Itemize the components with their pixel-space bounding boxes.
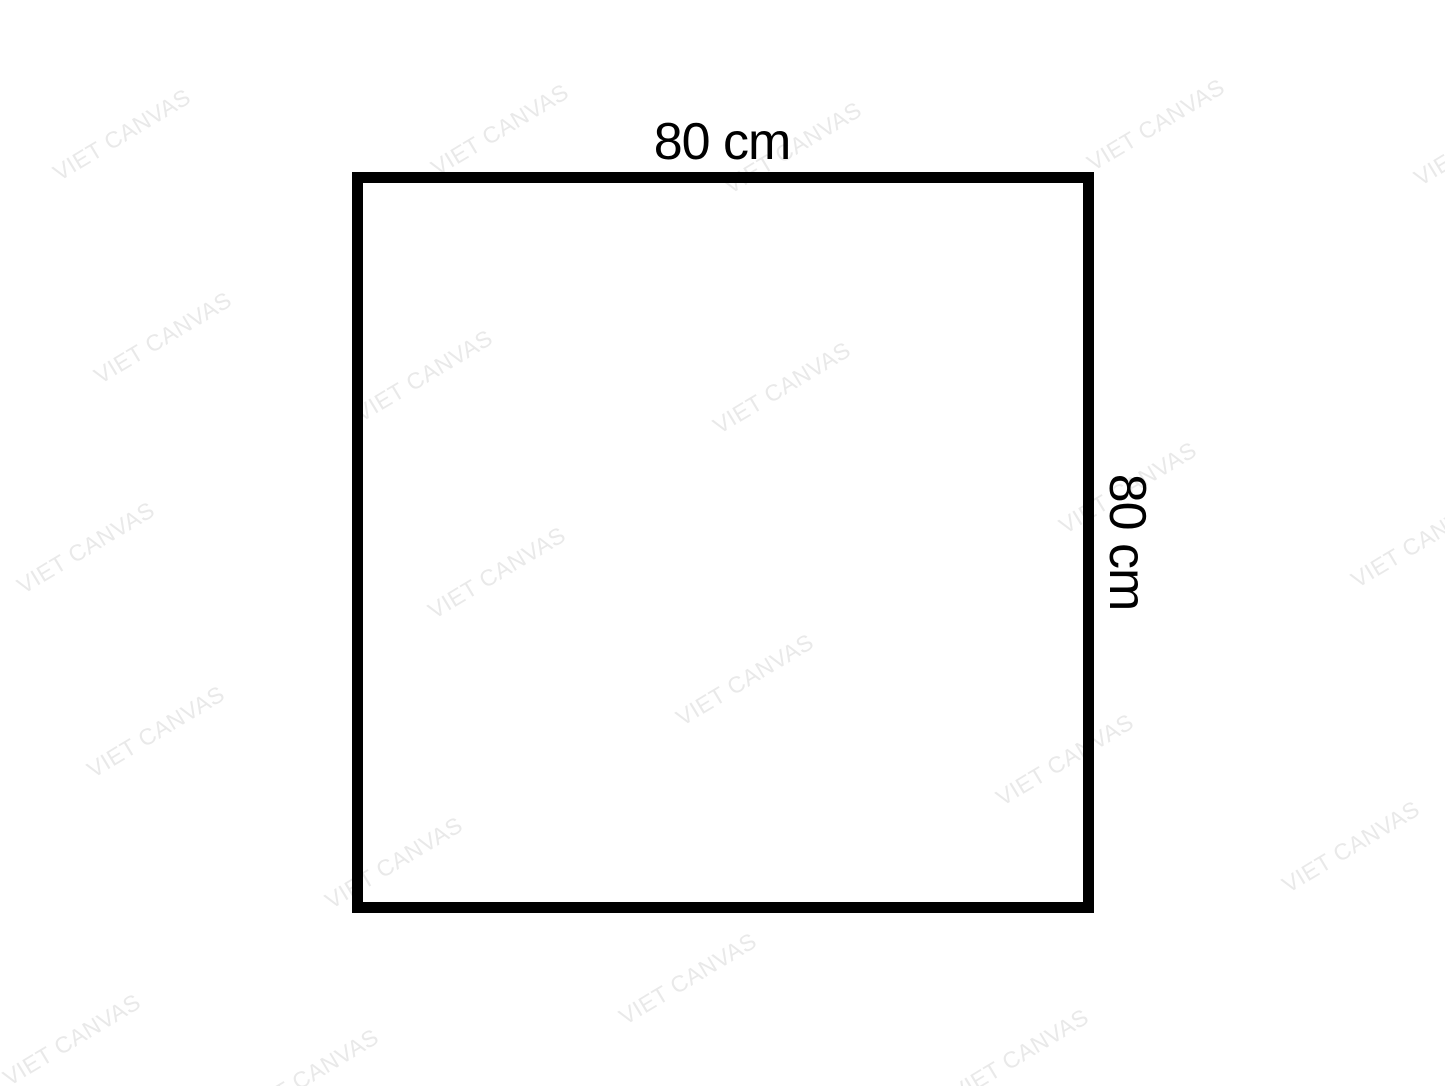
height-dimension-label: 80 cm: [1101, 474, 1153, 611]
watermark-text: VIET CANVAS: [89, 286, 236, 389]
watermark-text: VIET CANVAS: [1346, 490, 1445, 593]
watermark-text: VIET CANVAS: [946, 1003, 1093, 1086]
watermark-text: VIET CANVAS: [236, 1023, 383, 1086]
watermark-text: VIET CANVAS: [82, 680, 229, 783]
watermark-text: VIET CANVAS: [1082, 73, 1229, 176]
watermark-text: VIET CANVAS: [1409, 88, 1445, 191]
dimension-diagram: VIET CANVASVIET CANVASVIET CANVASVIET CA…: [0, 0, 1445, 1086]
square-outline: [352, 172, 1094, 913]
watermark-text: VIET CANVAS: [426, 78, 573, 181]
watermark-text: VIET CANVAS: [12, 496, 159, 599]
watermark-text: VIET CANVAS: [0, 988, 146, 1086]
watermark-text: VIET CANVAS: [614, 927, 761, 1030]
watermark-text: VIET CANVAS: [48, 83, 195, 186]
watermark-text: VIET CANVAS: [1277, 795, 1424, 898]
width-dimension-label: 80 cm: [654, 116, 791, 168]
